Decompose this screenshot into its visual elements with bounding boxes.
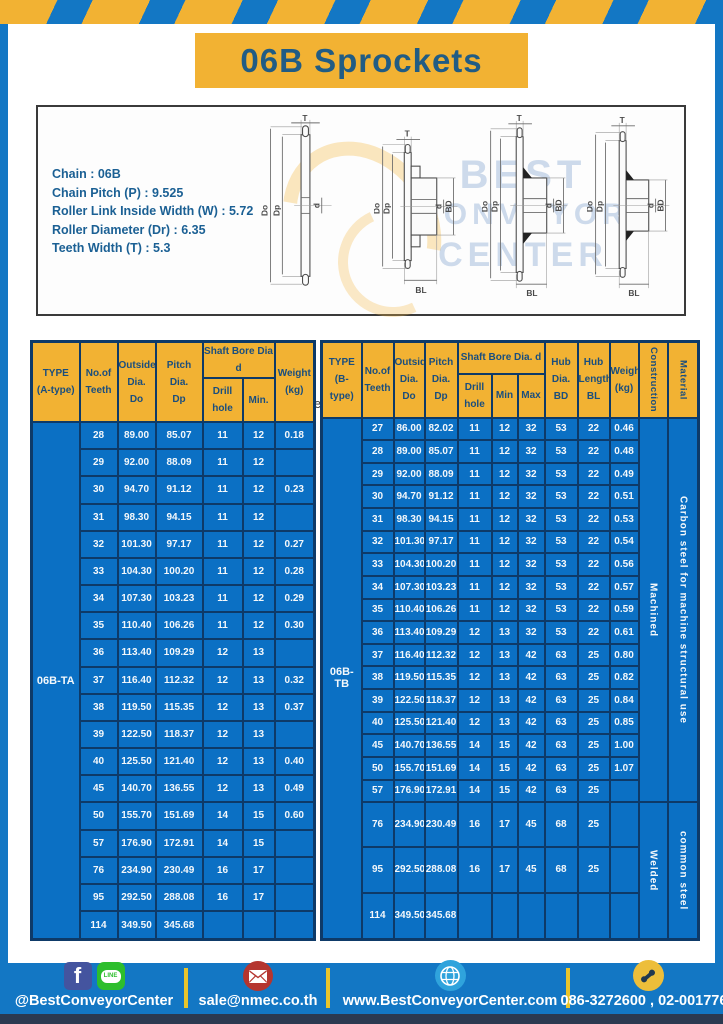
data-cell: 0.84: [610, 689, 639, 712]
dim-label: T: [620, 115, 626, 125]
data-cell: 125.50: [118, 748, 156, 775]
data-cell: 234.90: [118, 857, 156, 884]
data-cell: 107.30: [394, 576, 425, 599]
data-cell: 11: [458, 463, 492, 486]
construction-cell: Welded: [639, 802, 668, 939]
data-cell: 22: [578, 576, 610, 599]
data-cell: 17: [243, 884, 275, 911]
data-cell: 42: [518, 757, 545, 780]
dim-label: T: [302, 115, 308, 123]
data-cell: 22: [578, 485, 610, 508]
data-cell: 35: [80, 612, 118, 639]
data-cell: 53: [545, 599, 578, 622]
data-cell: 103.23: [156, 585, 203, 612]
data-cell: 85.07: [425, 440, 458, 463]
data-cell: 13: [492, 644, 518, 667]
data-cell: 11: [203, 531, 243, 558]
data-cell: 112.32: [156, 667, 203, 694]
data-cell: 88.09: [425, 463, 458, 486]
data-cell: 31: [362, 508, 394, 531]
data-cell: 0.54: [610, 531, 639, 554]
data-cell: 12: [203, 775, 243, 802]
data-cell: 22: [578, 599, 610, 622]
data-cell: 63: [545, 757, 578, 780]
data-cell: 25: [578, 644, 610, 667]
data-cell: 119.50: [118, 694, 156, 721]
data-cell: 136.55: [425, 734, 458, 757]
data-cell: 91.12: [156, 476, 203, 503]
data-cell: 11: [203, 612, 243, 639]
data-cell: 12: [458, 666, 492, 689]
col-header-min: Min.: [243, 378, 275, 422]
data-cell: 121.40: [425, 712, 458, 735]
data-cell: [275, 449, 315, 476]
spec-line: Roller Diameter (Dr) : 6.35: [52, 221, 253, 240]
col-header-teeth: No.of Teeth: [80, 342, 118, 423]
footer-website-group: www.BestConveyorCenter.com: [336, 960, 564, 1009]
data-cell: 42: [518, 644, 545, 667]
data-cell: 32: [518, 508, 545, 531]
data-cell: [518, 893, 545, 940]
data-cell: [203, 911, 243, 939]
data-cell: 17: [492, 847, 518, 892]
data-cell: 345.68: [156, 911, 203, 939]
data-cell: 13: [243, 667, 275, 694]
data-cell: [578, 893, 610, 940]
data-cell: 100.20: [425, 553, 458, 576]
data-cell: 35: [362, 599, 394, 622]
data-cell: 12: [243, 585, 275, 612]
data-cell: 97.17: [156, 531, 203, 558]
data-cell: 0.28: [275, 558, 315, 585]
data-cell: 37: [362, 644, 394, 667]
left-table-body: 06B-TA2889.0085.0711120.182992.0088.0911…: [32, 422, 315, 940]
data-cell: 0.57: [610, 576, 639, 599]
data-cell: 0.60: [275, 802, 315, 829]
dim-label: d: [544, 203, 554, 208]
data-cell: [492, 893, 518, 940]
data-cell: 32: [362, 531, 394, 554]
data-cell: 95: [80, 884, 118, 911]
data-cell: 39: [80, 721, 118, 748]
data-cell: 12: [458, 712, 492, 735]
dim-label: BL: [415, 285, 426, 295]
material-cell: common steel: [668, 802, 699, 939]
data-cell: 16: [203, 857, 243, 884]
data-cell: 25: [578, 734, 610, 757]
data-cell: 12: [243, 504, 275, 531]
data-cell: 116.40: [394, 644, 425, 667]
data-cell: 16: [203, 884, 243, 911]
col-header-drill-hole: Drill hole: [203, 378, 243, 422]
data-cell: 40: [80, 748, 118, 775]
data-cell: 53: [545, 531, 578, 554]
data-cell: 113.40: [394, 621, 425, 644]
data-cell: 98.30: [118, 504, 156, 531]
data-cell: 104.30: [118, 558, 156, 585]
col-header-hub-length: Hub Length BL: [578, 342, 610, 418]
data-cell: 140.70: [118, 775, 156, 802]
col-header-pitch-dia: Pitch Dia. Dp: [156, 342, 203, 423]
dim-label: d: [646, 203, 656, 208]
col-header-shaft-bore-group: Shaft Bore Dia d: [203, 342, 275, 379]
data-cell: 22: [578, 621, 610, 644]
data-cell: 22: [578, 508, 610, 531]
sprocket-drawing-b-machined: Do Dp d BD T BL: [374, 115, 469, 297]
data-cell: 121.40: [156, 748, 203, 775]
spec-lines: Chain : 06BChain Pitch (P) : 9.525Roller…: [52, 165, 253, 258]
data-cell: 45: [518, 847, 545, 892]
data-cell: 15: [243, 830, 275, 857]
data-cell: 91.12: [425, 485, 458, 508]
footer-social-handle: @BestConveyorCenter: [15, 993, 173, 1009]
right-table-body: 06B-TB2786.0082.0211123253220.46Machined…: [322, 418, 699, 940]
data-cell: 28: [80, 422, 118, 449]
page-title: 06B Sprockets: [240, 42, 482, 80]
data-cell: 0.85: [610, 712, 639, 735]
data-cell: 25: [578, 689, 610, 712]
data-cell: 32: [518, 621, 545, 644]
data-cell: 57: [80, 830, 118, 857]
data-cell: 32: [518, 463, 545, 486]
col-header-hub-dia: Hub Dia. BD: [545, 342, 578, 418]
data-cell: 12: [243, 612, 275, 639]
data-cell: 63: [545, 712, 578, 735]
data-cell: 0.37: [275, 694, 315, 721]
col-header-weight: Weight (kg): [275, 342, 315, 423]
data-cell: 1.00: [610, 734, 639, 757]
data-cell: 15: [243, 802, 275, 829]
data-cell: [275, 639, 315, 666]
data-cell: 92.00: [394, 463, 425, 486]
data-cell: 16: [458, 847, 492, 892]
data-cell: 116.40: [118, 667, 156, 694]
data-cell: 53: [545, 576, 578, 599]
data-cell: 57: [362, 780, 394, 803]
dim-label: Do: [374, 203, 382, 214]
data-cell: 13: [492, 666, 518, 689]
data-cell: 109.29: [425, 621, 458, 644]
footer-email-group: sale@nmec.co.th: [192, 961, 324, 1009]
diagram-box: BEST CONVEYOR CENTER Chain : 06BChain Pi…: [36, 105, 686, 316]
data-cell: 42: [518, 666, 545, 689]
data-cell: 13: [243, 748, 275, 775]
data-cell: 1.07: [610, 757, 639, 780]
data-cell: 25: [578, 847, 610, 892]
data-cell: 36: [80, 639, 118, 666]
data-cell: 12: [203, 639, 243, 666]
data-cell: 103.23: [425, 576, 458, 599]
data-cell: 22: [578, 418, 610, 441]
data-cell: 45: [518, 802, 545, 847]
data-cell: 13: [492, 621, 518, 644]
footer-bar: f LINE @BestConveyorCenter sale@nmec.co.…: [0, 963, 723, 1014]
data-cell: 68: [545, 847, 578, 892]
col-header-pitch-dia: Pitch Dia. Dp: [425, 342, 458, 418]
data-cell: 14: [203, 802, 243, 829]
data-cell: 288.08: [425, 847, 458, 892]
data-cell: 40: [362, 712, 394, 735]
data-cell: 12: [458, 644, 492, 667]
data-cell: 112.32: [425, 644, 458, 667]
data-cell: 16: [458, 802, 492, 847]
facebook-icon: f: [64, 962, 92, 990]
data-cell: 34: [362, 576, 394, 599]
data-cell: 12: [243, 558, 275, 585]
data-cell: 0.40: [275, 748, 315, 775]
data-cell: 114: [80, 911, 118, 939]
dim-label: BD: [553, 199, 563, 211]
data-cell: 63: [545, 780, 578, 803]
data-cell: 12: [492, 485, 518, 508]
data-cell: 106.26: [156, 612, 203, 639]
data-cell: 12: [492, 553, 518, 576]
mail-icon: [243, 961, 273, 991]
line-icon: LINE: [97, 962, 125, 990]
sprocket-drawing-b-welded: Do Dp d BD T BL: [482, 115, 577, 297]
data-cell: 15: [492, 734, 518, 757]
footer-divider: [184, 968, 188, 1008]
data-cell: 0.82: [610, 666, 639, 689]
data-cell: 151.69: [425, 757, 458, 780]
table-b-type: TYPE (B-type) No.of Teeth Outside Dia. D…: [320, 340, 700, 941]
data-cell: 53: [545, 508, 578, 531]
data-cell: 32: [518, 553, 545, 576]
data-cell: 97.17: [425, 531, 458, 554]
data-cell: 151.69: [156, 802, 203, 829]
col-header-min: Min: [492, 374, 518, 418]
data-cell: 50: [362, 757, 394, 780]
dim-label: Do: [587, 201, 595, 212]
data-cell: 101.30: [118, 531, 156, 558]
data-cell: [458, 893, 492, 940]
footer-bottom-strip: [0, 1014, 723, 1024]
data-cell: 12: [492, 440, 518, 463]
data-cell: 11: [203, 476, 243, 503]
footer-social-group: f LINE @BestConveyorCenter: [8, 961, 180, 1009]
data-cell: 42: [518, 734, 545, 757]
data-cell: 94.15: [156, 504, 203, 531]
data-cell: 12: [492, 508, 518, 531]
data-cell: 15: [492, 757, 518, 780]
data-cell: 11: [458, 440, 492, 463]
spec-line: Chain Pitch (P) : 9.525: [52, 184, 253, 203]
data-cell: 37: [80, 667, 118, 694]
material-cell: Carbon steel for machine structural use: [668, 418, 699, 803]
data-cell: 234.90: [394, 802, 425, 847]
construction-cell: Machined: [639, 418, 668, 803]
data-cell: 29: [80, 449, 118, 476]
dim-label: d: [434, 204, 444, 209]
data-cell: 89.00: [394, 440, 425, 463]
footer-phones: 086-3272600 , 02-0017766: [561, 993, 723, 1009]
data-cell: 63: [545, 734, 578, 757]
data-cell: 63: [545, 644, 578, 667]
data-cell: 110.40: [394, 599, 425, 622]
data-cell: 68: [545, 802, 578, 847]
data-cell: 32: [518, 485, 545, 508]
data-cell: 176.90: [118, 830, 156, 857]
data-cell: 101.30: [394, 531, 425, 554]
data-cell: 107.30: [118, 585, 156, 612]
data-cell: 42: [518, 780, 545, 803]
data-cell: 0.27: [275, 531, 315, 558]
data-cell: 32: [518, 440, 545, 463]
data-cell: 0.18: [275, 422, 315, 449]
table-row: 06B-TB2786.0082.0211123253220.46Machined…: [322, 418, 699, 441]
data-cell: 13: [243, 639, 275, 666]
data-cell: 11: [203, 504, 243, 531]
data-cell: 288.08: [156, 884, 203, 911]
data-cell: 115.35: [425, 666, 458, 689]
data-cell: 17: [243, 857, 275, 884]
col-header-shaft-bore-group: Shaft Bore Dia. d: [458, 342, 545, 374]
data-cell: 11: [458, 599, 492, 622]
dim-label: Dp: [594, 201, 604, 212]
data-cell: 53: [545, 440, 578, 463]
col-header-material: Material: [668, 342, 699, 418]
data-cell: 32: [518, 576, 545, 599]
data-cell: 76: [362, 802, 394, 847]
data-cell: 0.23: [275, 476, 315, 503]
data-cell: 0.32: [275, 667, 315, 694]
hazard-stripe-band: [0, 0, 723, 24]
col-header-type: TYPE (B-type): [322, 342, 362, 418]
data-cell: [275, 721, 315, 748]
data-cell: 118.37: [156, 721, 203, 748]
data-cell: 92.00: [118, 449, 156, 476]
data-cell: 14: [458, 780, 492, 803]
data-cell: 12: [243, 449, 275, 476]
data-cell: [275, 911, 315, 939]
data-cell: 13: [243, 694, 275, 721]
spec-line: Teeth Width (T) : 5.3: [52, 239, 253, 258]
col-header-type: TYPE (A-type): [32, 342, 80, 423]
data-cell: 25: [578, 712, 610, 735]
data-cell: 14: [203, 830, 243, 857]
data-cell: 88.09: [156, 449, 203, 476]
data-cell: 25: [578, 802, 610, 847]
dim-label: Do: [260, 205, 270, 216]
spec-line: Chain : 06B: [52, 165, 253, 184]
data-cell: 118.37: [425, 689, 458, 712]
data-cell: 32: [518, 599, 545, 622]
data-cell: 11: [203, 422, 243, 449]
data-cell: 12: [203, 694, 243, 721]
col-header-weight: Weight (kg): [610, 342, 639, 418]
data-cell: 0.51: [610, 485, 639, 508]
dim-label: T: [517, 115, 523, 123]
data-cell: 85.07: [156, 422, 203, 449]
data-cell: 98.30: [394, 508, 425, 531]
data-cell: 89.00: [118, 422, 156, 449]
data-cell: 0.53: [610, 508, 639, 531]
data-cell: 45: [362, 734, 394, 757]
data-cell: 176.90: [394, 780, 425, 803]
dim-label: Dp: [382, 203, 392, 214]
data-cell: 230.49: [425, 802, 458, 847]
data-cell: 63: [545, 666, 578, 689]
data-cell: 155.70: [394, 757, 425, 780]
dim-label: Do: [482, 201, 490, 212]
data-cell: [275, 830, 315, 857]
data-cell: 0.61: [610, 621, 639, 644]
data-cell: 292.50: [394, 847, 425, 892]
data-cell: 0.49: [275, 775, 315, 802]
data-cell: 12: [243, 531, 275, 558]
data-cell: 12: [458, 689, 492, 712]
data-cell: 11: [458, 485, 492, 508]
data-cell: 17: [492, 802, 518, 847]
data-cell: 94.15: [425, 508, 458, 531]
table-row: 76234.90230.491617456825Weldedcommon ste…: [322, 802, 699, 847]
footer-phone-group: 086-3272600 , 02-0017766: [576, 960, 720, 1009]
data-cell: 82.02: [425, 418, 458, 441]
data-cell: 34: [80, 585, 118, 612]
data-cell: 11: [458, 418, 492, 441]
data-cell: 22: [578, 531, 610, 554]
data-cell: 38: [362, 666, 394, 689]
data-cell: 12: [492, 576, 518, 599]
col-header-teeth: No.of Teeth: [362, 342, 394, 418]
title-banner: 06B Sprockets: [195, 33, 528, 88]
data-cell: 25: [578, 757, 610, 780]
data-cell: 76: [80, 857, 118, 884]
data-cell: 12: [203, 721, 243, 748]
table-row: 06B-TA2889.0085.0711120.18: [32, 422, 315, 449]
data-cell: 33: [362, 553, 394, 576]
data-cell: 30: [362, 485, 394, 508]
data-cell: 104.30: [394, 553, 425, 576]
table-a-type: TYPE (A-type) No.of Teeth Outside Dia. D…: [30, 340, 316, 941]
data-cell: [610, 780, 639, 803]
data-cell: 53: [545, 463, 578, 486]
data-cell: 86.00: [394, 418, 425, 441]
data-cell: 29: [362, 463, 394, 486]
data-cell: 13: [492, 712, 518, 735]
data-cell: 25: [578, 666, 610, 689]
data-cell: 0.59: [610, 599, 639, 622]
data-cell: 292.50: [118, 884, 156, 911]
sprocket-drawing-c-welded: Do Dp d BD T BL: [587, 115, 677, 297]
dim-label: BD: [444, 200, 454, 212]
spec-line: Roller Link Inside Width (W) : 5.72: [52, 202, 253, 221]
data-cell: [275, 504, 315, 531]
dim-label: BL: [628, 288, 639, 297]
phone-icon: [633, 960, 664, 991]
data-cell: 12: [492, 463, 518, 486]
data-cell: 31: [80, 504, 118, 531]
data-cell: 0.56: [610, 553, 639, 576]
data-cell: 349.50: [394, 893, 425, 940]
data-cell: 115.35: [156, 694, 203, 721]
data-cell: 28: [362, 440, 394, 463]
data-cell: 11: [203, 585, 243, 612]
data-cell: 39: [362, 689, 394, 712]
data-cell: 27: [362, 418, 394, 441]
data-cell: 15: [492, 780, 518, 803]
data-cell: 345.68: [425, 893, 458, 940]
data-cell: 11: [458, 531, 492, 554]
data-cell: 22: [578, 440, 610, 463]
data-cell: 42: [518, 712, 545, 735]
data-cell: 14: [458, 734, 492, 757]
data-cell: 63: [545, 689, 578, 712]
footer-website: www.BestConveyorCenter.com: [343, 993, 558, 1009]
col-header-drill-hole: Drill hole: [458, 374, 492, 418]
data-cell: 125.50: [394, 712, 425, 735]
data-cell: 114: [362, 893, 394, 940]
